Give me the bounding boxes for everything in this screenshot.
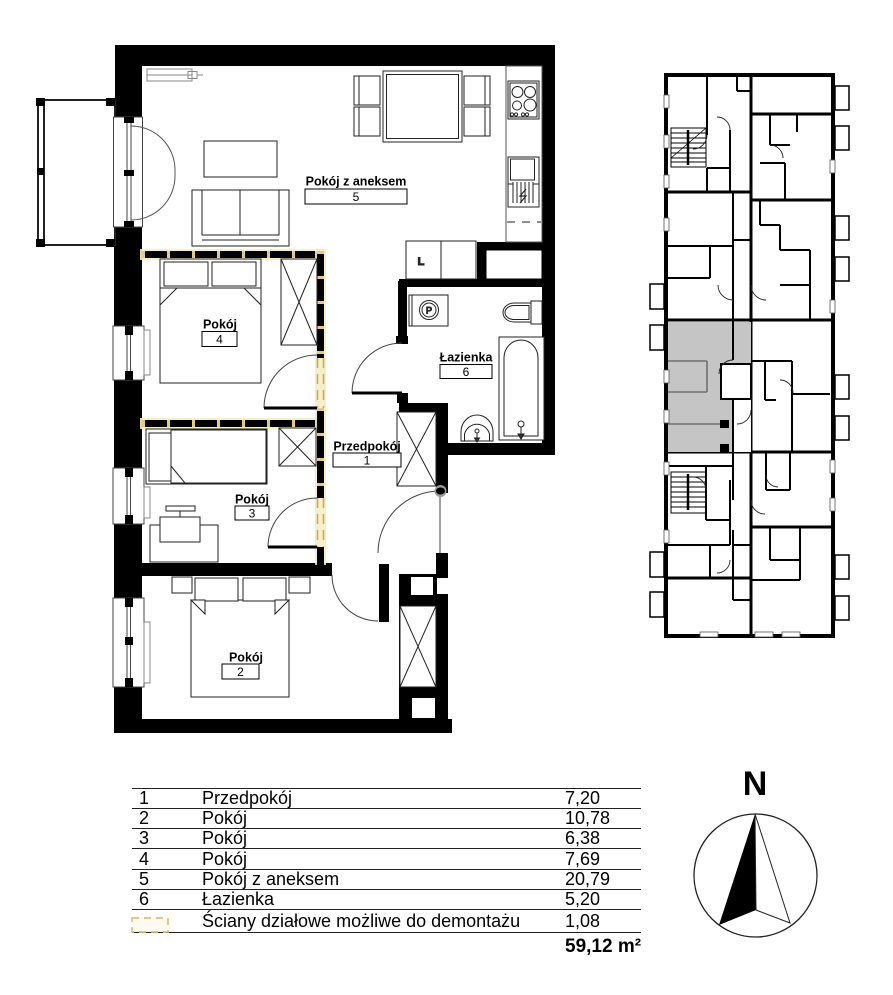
svg-text:3: 3 — [139, 828, 149, 848]
svg-text:Łazienka: Łazienka — [440, 351, 494, 365]
svg-text:Pokój z aneksem: Pokój z aneksem — [202, 869, 339, 889]
svg-text:3: 3 — [249, 507, 256, 521]
svg-text:Przedpokój: Przedpokój — [202, 788, 292, 808]
svg-text:6: 6 — [463, 365, 470, 379]
svg-text:5,20: 5,20 — [565, 889, 600, 909]
svg-text:5: 5 — [139, 869, 149, 889]
svg-text:1: 1 — [139, 788, 149, 808]
svg-text:6,38: 6,38 — [565, 828, 600, 848]
svg-text:Pokój: Pokój — [202, 808, 247, 828]
svg-text:P: P — [426, 306, 432, 316]
svg-text:Pokój: Pokój — [202, 849, 247, 869]
svg-text:1,08: 1,08 — [565, 911, 600, 931]
svg-text:59,12 m²: 59,12 m² — [565, 936, 641, 957]
svg-text:Pokój: Pokój — [229, 651, 263, 665]
svg-text:6: 6 — [139, 889, 149, 909]
svg-text:Przedpokój: Przedpokój — [333, 440, 400, 454]
svg-text:Pokój: Pokój — [202, 828, 247, 848]
svg-text:Pokój z aneksem: Pokój z aneksem — [306, 175, 407, 189]
svg-text:4: 4 — [139, 849, 149, 869]
svg-text:2: 2 — [237, 665, 244, 679]
svg-text:Ściany działowe możliwe do dem: Ściany działowe możliwe do demontażu — [202, 910, 520, 931]
svg-text:Pokój: Pokój — [235, 493, 269, 507]
svg-text:N: N — [743, 765, 768, 803]
svg-text:2: 2 — [139, 808, 149, 828]
svg-text:1: 1 — [364, 454, 371, 468]
svg-text:4: 4 — [216, 333, 223, 347]
svg-text:Pokój: Pokój — [203, 318, 237, 332]
svg-text:Łazienka: Łazienka — [202, 889, 275, 909]
svg-text:7,20: 7,20 — [565, 788, 600, 808]
svg-text:10,78: 10,78 — [565, 808, 610, 828]
svg-text:20,79: 20,79 — [565, 869, 610, 889]
svg-text:L: L — [418, 256, 425, 268]
svg-text:5: 5 — [353, 190, 360, 204]
svg-text:7,69: 7,69 — [565, 849, 600, 869]
